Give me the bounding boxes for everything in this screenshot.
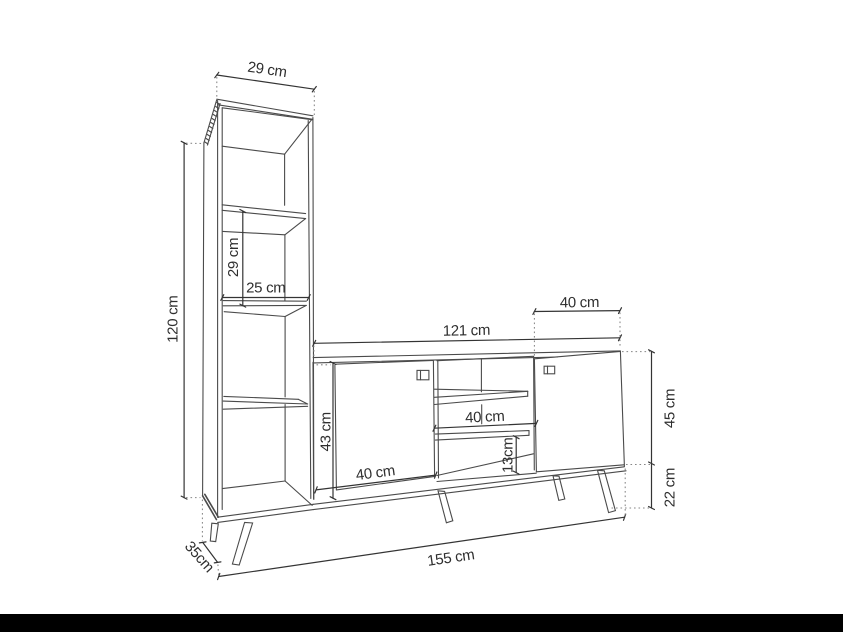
svg-text:121 cm: 121 cm [443, 322, 491, 340]
svg-text:40 cm: 40 cm [560, 294, 600, 312]
svg-text:35cm: 35cm [181, 538, 217, 576]
svg-text:40 cm: 40 cm [465, 408, 505, 427]
svg-text:120 cm: 120 cm [165, 296, 182, 343]
svg-text:22 cm: 22 cm [662, 468, 679, 507]
svg-text:155 cm: 155 cm [426, 546, 475, 570]
svg-text:29 cm: 29 cm [246, 59, 287, 82]
svg-text:25 cm: 25 cm [246, 279, 285, 296]
svg-text:45 cm: 45 cm [661, 389, 678, 428]
svg-text:13cm: 13cm [500, 438, 517, 473]
svg-text:29 cm: 29 cm [225, 238, 242, 277]
svg-text:43 cm: 43 cm [318, 412, 335, 451]
